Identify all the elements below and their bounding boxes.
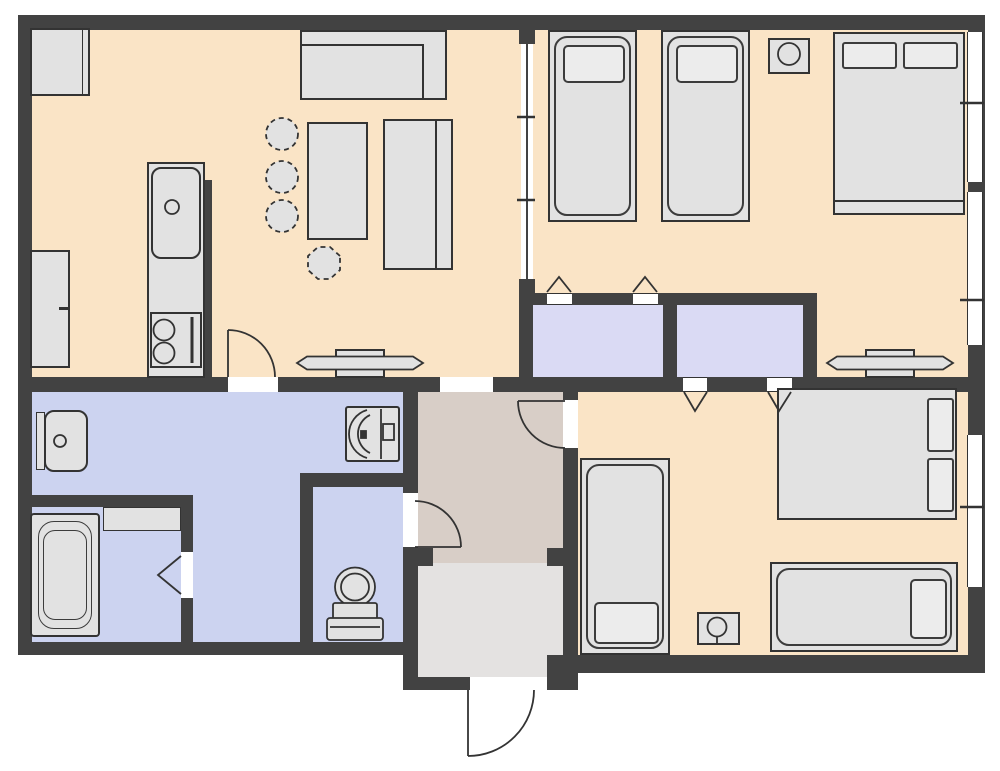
- double-bed-1: [833, 32, 965, 215]
- refrigerator-handle: [59, 307, 68, 310]
- wall-toilet-top: [300, 473, 413, 487]
- bed-foot-line: [835, 200, 963, 202]
- room-closet-2: [677, 305, 803, 377]
- opening-living-hallway: [440, 377, 493, 392]
- opening-closet1-a: [547, 293, 572, 305]
- wall-closet-right: [803, 293, 817, 390]
- vanity-sink: [44, 410, 88, 472]
- nightstand-2: [697, 612, 740, 645]
- entry-door-swing: [468, 690, 534, 756]
- wall-tubroom-top: [32, 495, 181, 507]
- window-2: [967, 192, 983, 345]
- pillow: [927, 458, 954, 512]
- wall-partition-stub-top: [519, 30, 535, 44]
- floor-plan: [0, 0, 1000, 771]
- opening-toilet-door: [403, 493, 418, 547]
- pillow: [676, 45, 738, 83]
- window-1: [967, 32, 983, 182]
- coffee-table: [307, 122, 368, 240]
- wall-vestibule-bottom: [403, 677, 470, 690]
- wall-hall-stub-left: [403, 548, 433, 566]
- wall-hall-stub-right: [547, 548, 578, 566]
- opening-bedroom2-door: [563, 400, 578, 448]
- wall-closet-divider: [663, 305, 677, 377]
- sofa-large: [300, 30, 447, 100]
- bathroom-counter: [103, 507, 181, 531]
- wall-toilet-left: [300, 487, 313, 642]
- pillow: [594, 602, 659, 644]
- room-hallway: [413, 390, 565, 563]
- wall-top: [18, 15, 985, 30]
- single-bed-4: [770, 562, 958, 652]
- refrigerator: [30, 250, 70, 368]
- window-3: [967, 435, 983, 587]
- bathtub: [30, 513, 100, 637]
- stove: [150, 312, 202, 368]
- sofa-small-seat: [385, 121, 437, 268]
- counter-notch: [127, 502, 157, 507]
- sofa-small: [383, 119, 453, 270]
- pillow: [842, 42, 897, 69]
- wall-bottom-left: [18, 642, 413, 655]
- washing-machine: [345, 406, 400, 462]
- corner-cabinet: [30, 28, 90, 96]
- opening-closet1-b: [633, 293, 658, 305]
- wall-closet-left: [519, 293, 533, 390]
- opening-tubroom-door: [181, 552, 193, 598]
- single-bed-3: [580, 458, 670, 655]
- cabinet-door-line: [82, 30, 83, 94]
- wall-vestibule-right: [547, 655, 578, 690]
- pillow: [927, 398, 954, 452]
- opening-closet2-a: [683, 377, 707, 392]
- pillow: [903, 42, 958, 69]
- pillow: [563, 45, 625, 83]
- sofa-large-seat: [302, 44, 424, 98]
- single-bed-1: [548, 30, 637, 222]
- tv-stand-bedroom: [865, 349, 915, 378]
- nightstand-1: [768, 38, 810, 74]
- pillow: [910, 579, 947, 639]
- double-bed-2: [777, 388, 957, 520]
- tv-stand-living: [335, 349, 385, 378]
- opening-bathroom-door: [228, 377, 278, 392]
- sliding-partition-line: [526, 44, 528, 279]
- single-bed-2: [661, 30, 750, 222]
- bathtub-basin: [43, 530, 87, 620]
- room-entry-vestibule: [418, 563, 563, 677]
- kitchen-sink: [151, 167, 201, 259]
- wall-partition-stub-bottom: [519, 279, 535, 295]
- room-closet-1: [533, 305, 663, 377]
- wall-bottom-right: [563, 655, 985, 673]
